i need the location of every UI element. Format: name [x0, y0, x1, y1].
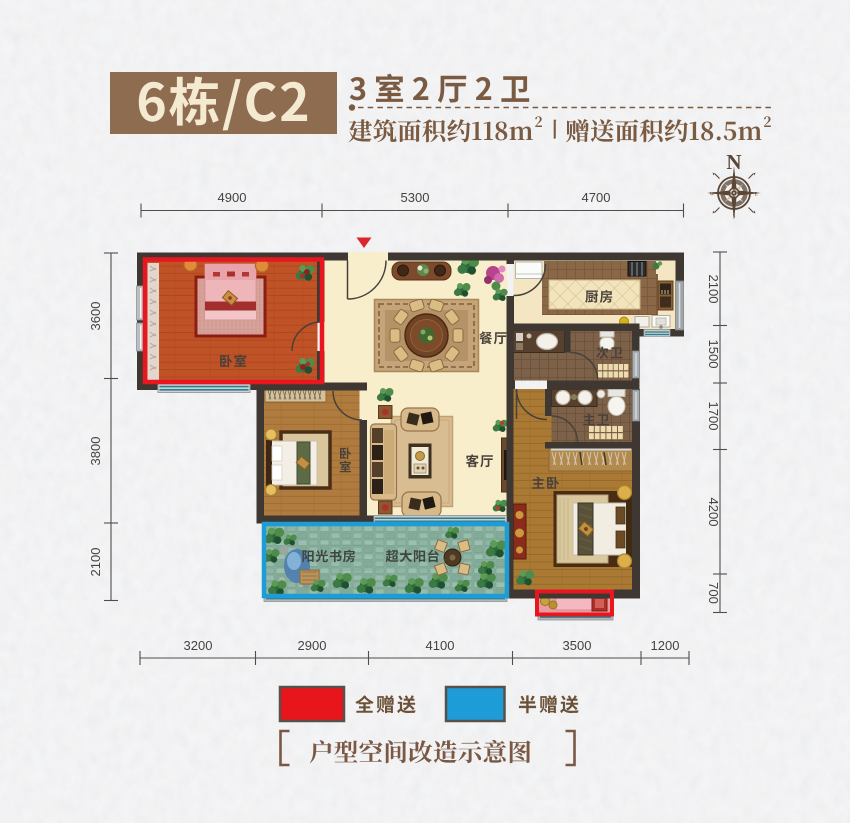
svg-text:2100: 2100 [88, 548, 103, 577]
svg-text:2100: 2100 [706, 275, 721, 304]
svg-text:4700: 4700 [582, 190, 611, 205]
svg-text:1200: 1200 [651, 638, 680, 653]
svg-text:W: W [710, 193, 715, 198]
svg-text:4900: 4900 [218, 190, 247, 205]
svg-text:3600: 3600 [88, 302, 103, 331]
svg-text:4100: 4100 [426, 638, 455, 653]
svg-text:3200: 3200 [184, 638, 213, 653]
svg-text:1500: 1500 [706, 340, 721, 369]
svg-text:E: E [754, 193, 757, 198]
svg-text:S: S [733, 215, 736, 220]
svg-text:1700: 1700 [706, 402, 721, 431]
svg-text:5300: 5300 [401, 190, 430, 205]
svg-text:3800: 3800 [88, 437, 103, 466]
svg-text:4200: 4200 [706, 498, 721, 527]
svg-text:3500: 3500 [563, 638, 592, 653]
svg-text:700: 700 [706, 582, 721, 604]
svg-text:2900: 2900 [298, 638, 327, 653]
